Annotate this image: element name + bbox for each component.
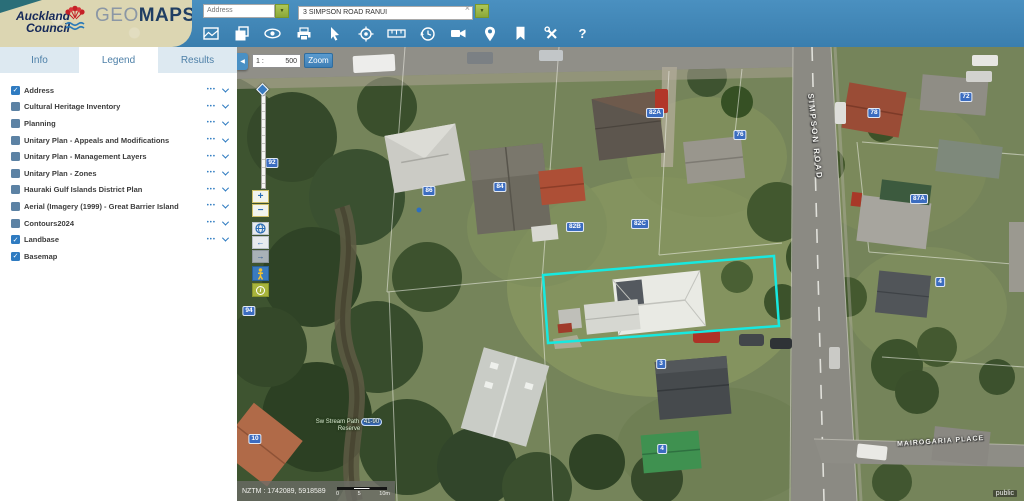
scale-input[interactable]: 1 : 500 xyxy=(252,54,301,68)
streetview-pegman-button[interactable] xyxy=(252,266,269,281)
layer-row-landbase[interactable]: ✓ Landbase ••• xyxy=(0,231,237,248)
layer-label: Unitary Plan - Appeals and Modifications xyxy=(24,136,207,145)
layer-row-up-management[interactable]: Unitary Plan - Management Layers ••• xyxy=(0,148,237,165)
clear-search-icon[interactable]: × xyxy=(465,2,470,14)
layer-label: Aerial (Imagery (1999) - Great Barrier I… xyxy=(24,202,207,211)
house-number-label: 87A xyxy=(910,194,928,204)
scalebar-tick: 0 xyxy=(336,491,339,497)
layer-row-up-zones[interactable]: Unitary Plan - Zones ••• xyxy=(0,165,237,182)
layer-menu-icon[interactable]: ••• xyxy=(207,220,216,226)
house-number-label: 3 xyxy=(656,359,666,369)
house-number-label: 78 xyxy=(867,108,880,118)
visibility-eye-icon[interactable] xyxy=(261,23,284,44)
help-icon[interactable]: ? xyxy=(571,23,594,44)
previous-extent-button[interactable]: ← xyxy=(252,236,269,249)
tools-wrench-icon[interactable] xyxy=(540,23,563,44)
zoom-slider[interactable] xyxy=(261,87,266,189)
sidebar-collapse-button[interactable]: ◀ xyxy=(237,53,248,70)
layer-row-hauraki[interactable]: Hauraki Gulf Islands District Plan ••• xyxy=(0,182,237,199)
layer-menu-icon[interactable]: ••• xyxy=(207,187,216,193)
layer-menu-icon[interactable]: ••• xyxy=(207,137,216,143)
search-input[interactable] xyxy=(298,6,473,20)
layer-label: Contours2024 xyxy=(24,219,207,228)
map-viewport[interactable]: SIMPSON ROAD MAIROGARIA PLACE Sw Stream … xyxy=(237,47,1024,501)
layer-menu-icon[interactable]: ••• xyxy=(207,203,216,209)
layer-checkbox[interactable] xyxy=(11,119,20,128)
layer-label: Basemap xyxy=(24,252,228,261)
info-glyph: i xyxy=(256,286,265,295)
chevron-down-icon[interactable] xyxy=(222,185,229,192)
coordinate-readout: NZTM : 1742089, 5918589 xyxy=(242,488,336,495)
scale-prefix: 1 : xyxy=(256,58,264,65)
house-number-label: 82B xyxy=(566,222,584,232)
house-number-label: 4 xyxy=(935,277,945,287)
scalebar-bar xyxy=(337,487,387,490)
layer-checkbox[interactable]: ✓ xyxy=(11,86,20,95)
search-bar: Address ▼ × ▼ xyxy=(203,3,489,18)
chevron-down-icon[interactable] xyxy=(222,168,229,175)
scalebar-tick: 10m xyxy=(379,491,390,497)
history-clock-icon[interactable] xyxy=(416,23,439,44)
scalebar-tick: 5 xyxy=(358,491,361,497)
tab-results[interactable]: Results xyxy=(158,47,237,73)
map-pin-icon[interactable] xyxy=(478,23,501,44)
chevron-down-icon[interactable] xyxy=(222,85,229,92)
sidebar-tabs: Info Legend Results xyxy=(0,47,237,73)
layer-checkbox[interactable] xyxy=(11,169,20,178)
layer-checkbox[interactable] xyxy=(11,219,20,228)
chevron-down-icon[interactable] xyxy=(222,119,229,126)
public-watermark: public xyxy=(993,490,1017,497)
layer-menu-icon[interactable]: ••• xyxy=(207,170,216,176)
street-camera-icon[interactable] xyxy=(447,23,470,44)
layer-checkbox[interactable]: ✓ xyxy=(11,252,20,261)
house-number-label: 10 xyxy=(248,434,261,444)
print-icon[interactable] xyxy=(292,23,315,44)
layer-list: ✓ Address ••• Cultural Heritage Inventor… xyxy=(0,73,237,265)
layer-row-aerial-1999[interactable]: Aerial (Imagery (1999) - Great Barrier I… xyxy=(0,198,237,215)
layer-row-basemap[interactable]: ✓ Basemap xyxy=(0,248,237,265)
scalebar: 0 5 10m xyxy=(336,484,390,498)
map-toolbar: ? xyxy=(199,21,594,46)
chevron-down-icon[interactable] xyxy=(222,202,229,209)
layer-label: Address xyxy=(24,86,207,95)
zoom-out-button[interactable]: − xyxy=(252,204,269,217)
overview-map-icon[interactable] xyxy=(199,23,222,44)
house-number-label: 84 xyxy=(493,182,506,192)
layer-menu-icon[interactable]: ••• xyxy=(207,87,216,93)
layer-label: Unitary Plan - Zones xyxy=(24,169,207,178)
layer-row-address[interactable]: ✓ Address ••• xyxy=(0,82,237,99)
layer-label: Planning xyxy=(24,119,207,128)
layer-checkbox[interactable]: ✓ xyxy=(11,235,20,244)
tab-info[interactable]: Info xyxy=(0,47,79,73)
brand-maps: MAPS xyxy=(139,5,192,26)
search-go-button[interactable]: ▼ xyxy=(475,4,489,18)
layer-checkbox[interactable] xyxy=(11,202,20,211)
locate-target-icon[interactable] xyxy=(354,23,377,44)
geomaps-brand: GEOMAPS xyxy=(95,5,192,27)
pohutukawa-flower-icon xyxy=(60,3,90,38)
layer-menu-icon[interactable]: ••• xyxy=(207,104,216,110)
house-number-label: 72 xyxy=(959,92,972,102)
reserve-label-line1: Sw Stream Path xyxy=(316,419,359,425)
layer-menu-icon[interactable]: ••• xyxy=(207,154,216,160)
layer-label: Hauraki Gulf Islands District Plan xyxy=(24,185,207,194)
house-number-label: 86 xyxy=(422,186,435,196)
chevron-down-icon[interactable] xyxy=(222,152,229,159)
reserve-label-line2: Reserve xyxy=(303,426,395,433)
next-extent-button[interactable]: → xyxy=(252,250,269,263)
reserve-label: Sw Stream Path 41-90 Reserve xyxy=(303,419,395,433)
house-number-label: 4 xyxy=(657,444,667,454)
header-bar: Address ▼ × ▼ xyxy=(0,0,1024,47)
tab-legend[interactable]: Legend xyxy=(79,47,158,73)
layer-row-contours[interactable]: Contours2024 ••• xyxy=(0,215,237,232)
zoom-in-button[interactable]: + xyxy=(252,190,269,203)
search-category-select[interactable]: Address xyxy=(203,4,275,18)
house-number-label: 82C xyxy=(631,219,649,229)
house-number-label: 82A xyxy=(646,108,664,118)
reserve-badge: 41-90 xyxy=(361,418,382,426)
layer-label: Cultural Heritage Inventory xyxy=(24,102,207,111)
identify-info-button[interactable]: i xyxy=(252,283,269,297)
layer-checkbox[interactable] xyxy=(11,136,20,145)
layer-label: Landbase xyxy=(24,235,207,244)
brand-geo: GEO xyxy=(95,5,139,26)
scale-value: 500 xyxy=(285,58,297,65)
category-dropdown-button[interactable]: ▼ xyxy=(275,4,289,18)
layer-row-planning[interactable]: Planning ••• xyxy=(0,115,237,132)
layer-row-cultural-heritage[interactable]: Cultural Heritage Inventory ••• xyxy=(0,99,237,116)
logo-panel: Auckland Council GEOMAPS xyxy=(0,0,192,47)
layer-row-up-appeals[interactable]: Unitary Plan - Appeals and Modifications… xyxy=(0,132,237,149)
left-sidebar: Info Legend Results ✓ Address ••• Cultur… xyxy=(0,47,237,501)
layer-menu-icon[interactable]: ••• xyxy=(207,237,216,243)
house-number-label: 94 xyxy=(242,306,255,316)
full-extent-globe-button[interactable] xyxy=(252,222,269,235)
house-number-label: 92 xyxy=(265,158,278,168)
zoom-to-scale-button[interactable]: Zoom xyxy=(304,53,333,68)
bookmark-flag-icon[interactable] xyxy=(509,23,532,44)
chevron-down-icon[interactable] xyxy=(222,235,229,242)
layer-checkbox[interactable] xyxy=(11,152,20,161)
layer-checkbox[interactable] xyxy=(11,102,20,111)
house-number-label: 76 xyxy=(733,130,746,140)
layer-label: Unitary Plan - Management Layers xyxy=(24,152,207,161)
layers-icon[interactable] xyxy=(230,23,253,44)
map-statusbar: NZTM : 1742089, 5918589 0 5 10m xyxy=(237,481,395,501)
chevron-down-icon[interactable] xyxy=(222,218,229,225)
search-input-wrap: × xyxy=(298,1,473,20)
geomaps-app: Address ▼ × ▼ xyxy=(0,0,1024,501)
chevron-down-icon[interactable] xyxy=(222,102,229,109)
measure-ruler-icon[interactable] xyxy=(385,23,408,44)
chevron-down-icon[interactable] xyxy=(222,135,229,142)
layer-checkbox[interactable] xyxy=(11,185,20,194)
select-cursor-icon[interactable] xyxy=(323,23,346,44)
layer-menu-icon[interactable]: ••• xyxy=(207,120,216,126)
